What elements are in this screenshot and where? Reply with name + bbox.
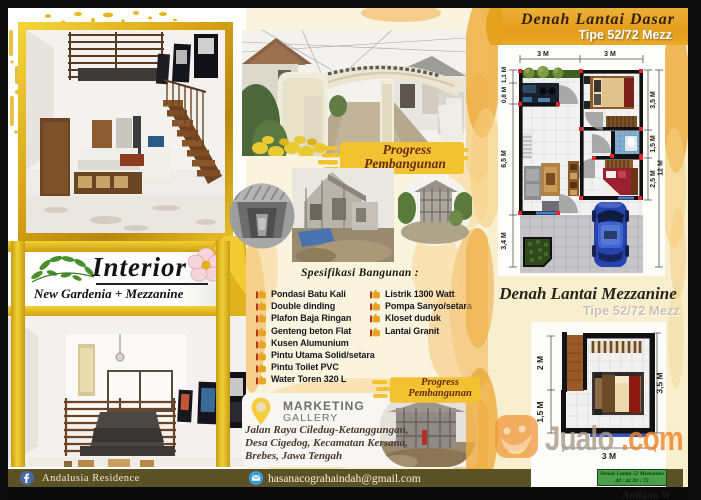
svg-text:0,8 M: 0,8 M <box>501 87 508 103</box>
svg-text:2,5 M: 2,5 M <box>650 170 657 188</box>
svg-text:3 M: 3 M <box>537 51 549 58</box>
svg-text:2 M: 2 M <box>535 356 545 370</box>
svg-text:3,5 M: 3,5 M <box>655 372 665 393</box>
svg-text:Jualo: Jualo <box>545 419 614 457</box>
svg-text:.com: .com <box>621 419 683 457</box>
svg-text:1,5 M: 1,5 M <box>650 135 657 153</box>
svg-text:3 M: 3 M <box>604 51 616 58</box>
svg-text:3,4 M: 3,4 M <box>501 232 508 250</box>
svg-text:12 M: 12 M <box>658 160 665 176</box>
svg-text:1,1 M: 1,1 M <box>501 67 508 83</box>
svg-text:3,5 M: 3,5 M <box>650 91 657 109</box>
svg-text:6,5 M: 6,5 M <box>501 150 508 168</box>
